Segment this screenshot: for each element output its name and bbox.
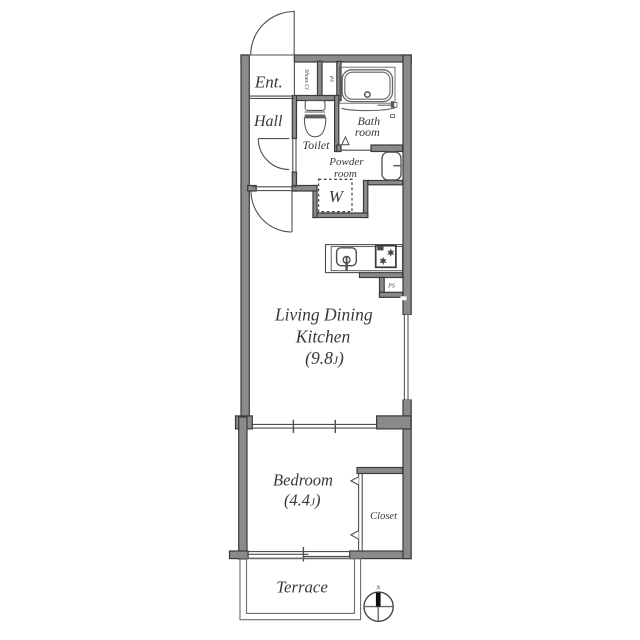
svg-text:room: room <box>334 168 357 180</box>
svg-text:Terrace: Terrace <box>276 577 328 596</box>
svg-text:PS: PS <box>387 284 395 290</box>
svg-text:Powder: Powder <box>328 156 364 168</box>
svg-text:Closet: Closet <box>370 511 398 522</box>
svg-text:PS: PS <box>328 75 334 82</box>
svg-text:Bedroom: Bedroom <box>273 470 333 489</box>
svg-text:W: W <box>329 187 345 206</box>
svg-text:room: room <box>355 125 380 139</box>
svg-text:Living Dining: Living Dining <box>274 305 373 325</box>
svg-text:Shoes Cl: Shoes Cl <box>303 69 309 90</box>
svg-text:(9.8J): (9.8J) <box>305 348 344 368</box>
svg-text:(4.4J): (4.4J) <box>284 491 321 510</box>
svg-text:Ent.: Ent. <box>254 72 283 91</box>
svg-text:Hall: Hall <box>253 113 283 130</box>
svg-text:Kitchen: Kitchen <box>295 327 351 347</box>
svg-text:Toilet: Toilet <box>303 138 331 152</box>
